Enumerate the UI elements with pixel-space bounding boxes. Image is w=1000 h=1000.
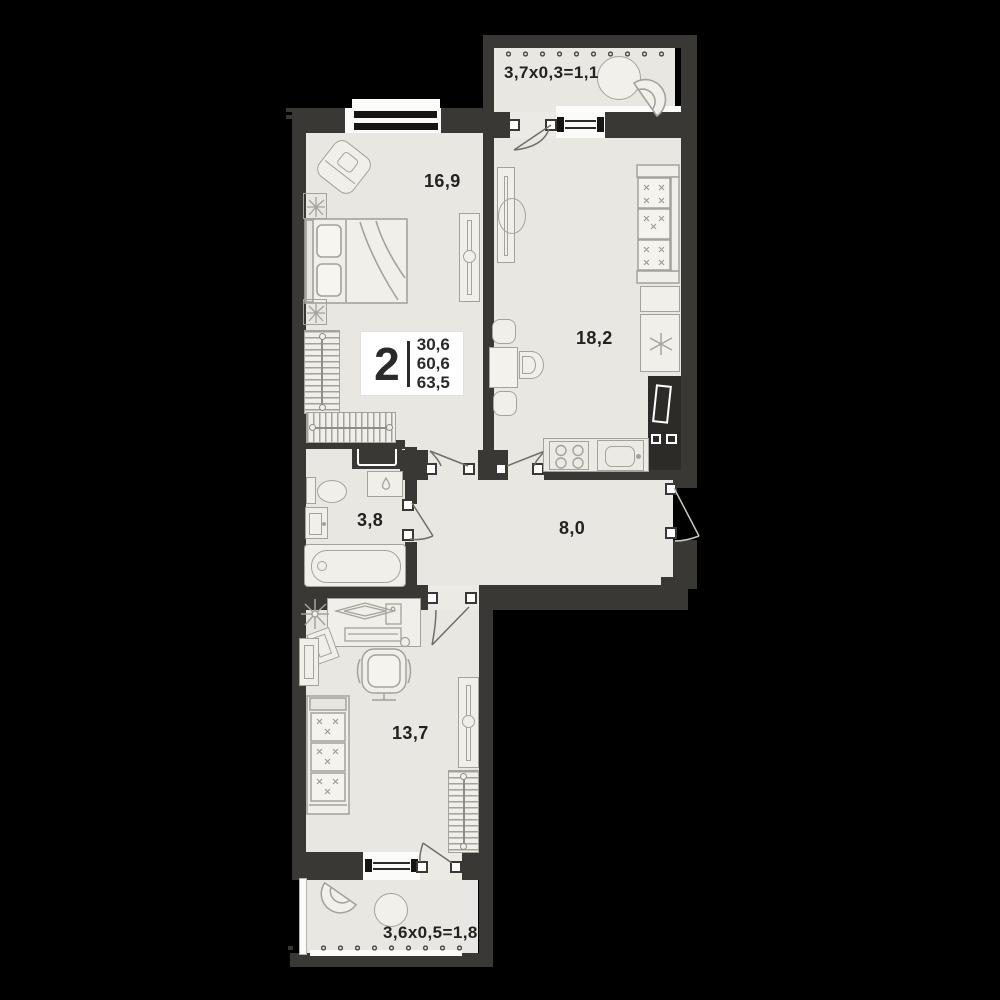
- office-chair-icon: [350, 645, 418, 705]
- wardrobe-rod-end: [386, 424, 393, 431]
- total-area-value: 63,5: [417, 373, 450, 392]
- apartment-area-value: 60,6: [417, 354, 450, 373]
- bathtub-drain: [317, 561, 327, 571]
- mirror-knob: [462, 715, 475, 728]
- toilet-bowl: [317, 480, 347, 503]
- hallway-area-label: 8,0: [559, 518, 585, 539]
- wardrobe-rod: [311, 427, 391, 429]
- chair-icon: [492, 319, 516, 344]
- living-area-value: 30,6: [417, 335, 450, 354]
- chair-icon: [493, 391, 517, 416]
- kitchen-living-area-label: 18,2: [576, 328, 613, 349]
- balcony-bottom-label: 3,6x0,5=1,8: [383, 923, 478, 943]
- wardrobe-icon: [304, 330, 340, 414]
- mirror-knob: [463, 250, 476, 263]
- chair-inner: [522, 356, 536, 374]
- utility-shaft: [648, 376, 681, 470]
- wardrobe-rod-end: [309, 424, 316, 431]
- wardrobe-rod-end: [460, 773, 467, 780]
- wardrobe-rod: [463, 775, 465, 848]
- floor-plan: 16,9 18,2 3,8 8,0 13,7 3,7x0,3=1,1 3,6x0…: [0, 0, 1000, 1000]
- mirror-icon: [458, 677, 479, 768]
- wardrobe-rod: [321, 335, 323, 409]
- card-divider: [407, 341, 410, 387]
- kitchen-cabinet: [640, 286, 680, 312]
- plant-icon: [303, 193, 327, 219]
- tv-icon: [498, 198, 526, 234]
- apartment-info-card: 2 30,6 60,6 63,5: [361, 332, 463, 395]
- stove-icon: [549, 441, 589, 470]
- plant-icon: [299, 597, 331, 631]
- water-heater-icon: [367, 471, 403, 497]
- bathtub-icon: [304, 544, 406, 587]
- shaft-box: [651, 434, 661, 444]
- plant-icon: [303, 299, 327, 325]
- desk-icon: [327, 598, 421, 647]
- bedroom-area-label: 16,9: [424, 171, 461, 192]
- wall-shelf-icon: [299, 638, 319, 686]
- sink-basin: [605, 446, 635, 467]
- bathroom-area-label: 3,8: [357, 510, 383, 531]
- fridge-icon: [640, 314, 680, 372]
- balcony-table-icon: [374, 893, 408, 927]
- faucet-dot: [322, 522, 326, 526]
- wardrobe-rod-end: [319, 333, 326, 340]
- balcony-top-label: 3,7x0,3=1,1: [504, 63, 599, 83]
- wardrobe-rod-end: [319, 404, 326, 411]
- door-swing-lines: [0, 0, 1000, 1000]
- single-bed-icon: [306, 695, 350, 815]
- faucet-dot: [636, 454, 641, 459]
- wardrobe-icon: [448, 770, 479, 853]
- sofa-icon: [636, 164, 682, 284]
- washbasin-icon: [305, 507, 328, 539]
- basin-inner: [309, 513, 322, 535]
- bedroom-second-area-label: 13,7: [392, 723, 429, 744]
- sink-icon: [597, 440, 644, 471]
- double-bed-icon: [304, 218, 408, 304]
- dining-table-icon: [489, 347, 518, 388]
- chair-icon: [519, 351, 544, 379]
- rooms-count: 2: [374, 341, 400, 387]
- toilet-icon: [306, 477, 316, 504]
- shelf-inner: [304, 645, 314, 679]
- shaft-box: [666, 434, 677, 444]
- shaft-panel: [652, 384, 672, 423]
- wardrobe-rod-end: [460, 843, 467, 850]
- mirror-icon: [459, 213, 480, 302]
- wardrobe-icon: [306, 412, 396, 443]
